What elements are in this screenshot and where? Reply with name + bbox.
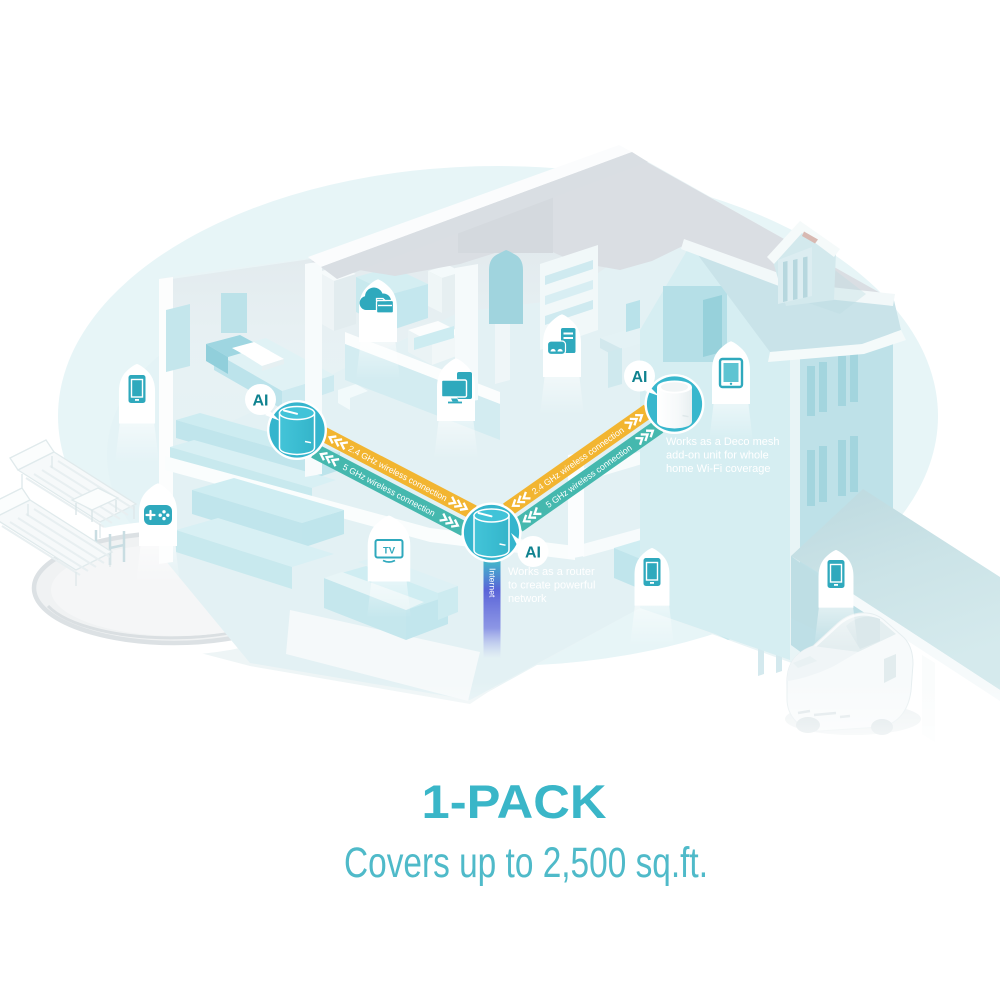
svg-text:network: network bbox=[508, 593, 547, 605]
svg-text:home Wi-Fi coverage: home Wi-Fi coverage bbox=[666, 463, 771, 475]
svg-text:to create powerful: to create powerful bbox=[508, 580, 595, 592]
svg-text:AI: AI bbox=[632, 369, 648, 386]
svg-text:TV: TV bbox=[383, 546, 396, 557]
svg-text:Internet: Internet bbox=[488, 568, 498, 598]
svg-text:1-PACK: 1-PACK bbox=[422, 775, 607, 828]
svg-text:Covers up to 2,500 sq.ft.: Covers up to 2,500 sq.ft. bbox=[344, 839, 708, 887]
svg-text:add-on unit for whole: add-on unit for whole bbox=[666, 450, 769, 462]
svg-text:AI: AI bbox=[525, 545, 541, 562]
svg-text:AI: AI bbox=[253, 393, 269, 410]
svg-text:Works as a router: Works as a router bbox=[508, 566, 595, 578]
